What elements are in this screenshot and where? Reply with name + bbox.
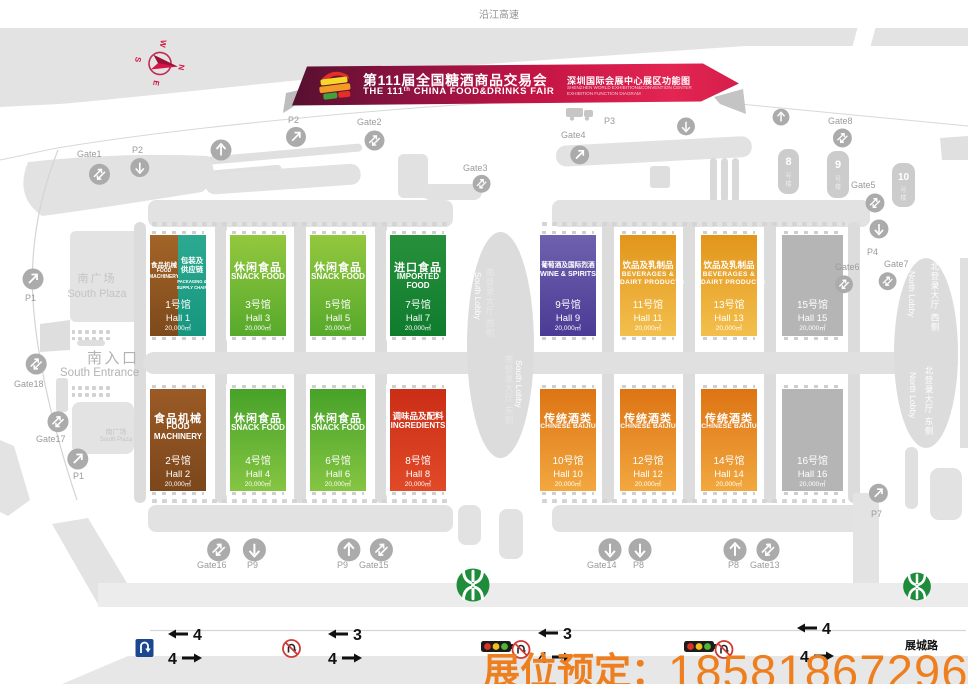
svg-text:4: 4 [822,621,831,638]
svg-text:号: 号 [785,173,791,180]
svg-text:楼: 楼 [785,180,791,188]
svg-text:4: 4 [328,651,337,668]
svg-text:号: 号 [900,187,906,194]
svg-text:楼: 楼 [835,183,841,191]
svg-text:3: 3 [353,627,362,644]
svg-text:号: 号 [835,176,841,183]
svg-text:4: 4 [168,651,177,668]
svg-text:10: 10 [898,172,910,183]
svg-text:4: 4 [193,627,202,644]
svg-text:楼: 楼 [900,194,906,202]
svg-text:8: 8 [785,156,791,168]
svg-text:9: 9 [835,159,841,171]
